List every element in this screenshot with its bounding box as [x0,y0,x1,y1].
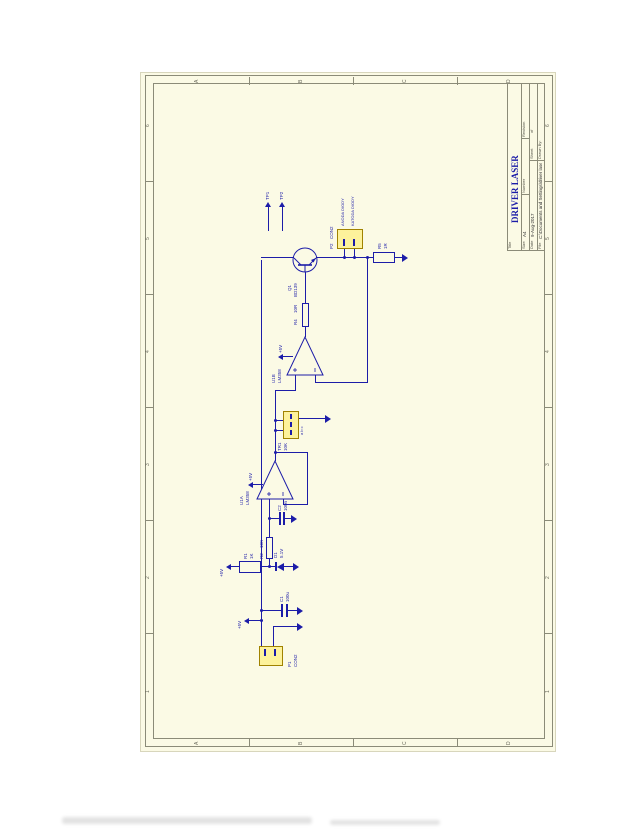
opamp-u1a [253,459,297,501]
wire [305,327,306,337]
capacitor-c2 [279,512,281,525]
r1-value: 1K [249,553,254,559]
wire [249,620,261,621]
u1b-designator: U1B [271,374,276,383]
connector-pin [274,649,276,656]
sheet-title: DRIVER LASER [510,155,520,223]
tr1-value: 10K [283,443,288,451]
gnd-symbol [402,254,408,262]
grid-label: A [195,742,200,745]
wire [231,566,239,567]
wire [269,518,279,519]
file-label: File [538,243,543,249]
u1a-designator: U1A [239,496,244,505]
wire [307,452,308,505]
wire [282,207,283,231]
grid-tick [145,520,153,521]
testpin-flag [279,202,285,207]
grid-label: 5 [146,237,151,240]
wire [268,207,269,231]
wire [273,626,297,627]
tp2-label: TP2 [279,192,284,200]
grid-label: C [403,79,408,83]
grid-label: 3 [546,463,551,466]
testpin-flag [265,202,271,207]
grid-label: 4 [546,350,551,353]
wire [284,566,293,567]
title-label: Title [508,242,513,249]
wire [275,390,295,391]
grid-label: 2 [146,576,151,579]
grid-tick [545,294,553,295]
wire [261,610,281,611]
grid-tick [145,294,153,295]
grid-tick [545,181,553,182]
wire [288,610,297,611]
q1-designator: Q1 [287,285,292,291]
resistor-r1 [239,561,261,573]
r5-designator: R5 [377,243,382,249]
vcc-flag [248,482,253,488]
junction-dot [343,256,346,259]
wire [253,484,263,485]
gnd-symbol [325,415,331,423]
number-label: Number [522,179,527,193]
grid-tick [545,520,553,521]
connector-pin [264,649,266,656]
d1-value: 5.1V [279,549,284,558]
vcc-flag [278,354,283,360]
schematic-sheet: 1 2 3 4 5 6 1 2 3 4 5 6 A B C D A B C D … [140,72,556,752]
con1-value: CON2 [293,654,298,667]
grid-tick [145,181,153,182]
wire [283,499,284,505]
vcc-label: +5V [248,473,253,481]
transistor-q1 [291,244,321,274]
r2-designator: R2 [259,553,264,559]
grid-label: 3 [146,463,151,466]
con2-value: CON2 [329,226,334,239]
c1-value: 100u [285,592,290,602]
con2-pin1-label: ANODA DIODY [341,198,346,226]
date-label: Date [530,241,535,249]
resistor-r5 [373,252,395,263]
wire [275,452,307,453]
sheet-label: Sheet [530,149,535,159]
r1-designator: R1 [243,553,248,559]
c1-designator: C1 [279,596,284,602]
wire [275,453,276,461]
r4-designator: R4 [293,319,298,325]
grid-label: A [195,80,200,83]
gnd-symbol [291,515,297,523]
r5-value: 1R [383,243,388,249]
con2-designator: P2 [329,243,334,249]
grid-label: C [403,741,408,745]
wire [299,418,325,419]
wire [273,627,274,646]
resistor-r2 [266,537,273,559]
vcc-label: +5V [278,345,283,353]
capacitor-c1 [281,604,283,617]
grid-label: 1 [146,690,151,693]
scan-artifact [62,817,312,824]
wire [315,382,368,383]
trimpot-mark [290,414,292,419]
grid-label: 2 [546,576,551,579]
con2-pin2-label: KATODA DIODY [351,196,356,226]
tp1-label: TP1 [265,192,270,200]
grid-tick [145,633,153,634]
trimpot-mark [290,430,292,435]
junction-dot [353,256,356,259]
revision-label: Revision [522,122,527,137]
connector-con1 [259,646,283,666]
scanned-page: 1 2 3 4 5 6 1 2 3 4 5 6 A B C D A B C D … [0,0,640,829]
d1-designator: D1 [273,552,278,558]
grid-label: B [299,742,304,745]
grid-tick [249,739,250,747]
wire [275,430,283,431]
drawn-by-label: Drawn By: [538,141,543,159]
size-value: A4 [522,231,527,237]
q1-value: BD139 [293,283,298,297]
grid-label: D [507,741,512,745]
grid-tick [457,77,458,85]
grid-label: 4 [146,350,151,353]
grid-label: 6 [146,124,151,127]
grid-label: 6 [546,124,551,127]
wire [275,391,276,453]
wire [261,621,262,646]
gnd-symbol [297,607,303,615]
grid-tick [145,407,153,408]
grid-tick [353,739,354,747]
grid-tick [353,77,354,85]
gnd-symbol [297,623,303,631]
connector-pin [353,239,355,246]
file-value: C:\Documents and Settings\driver laser.d… [538,163,543,239]
u1b-value: LM358 [277,369,282,383]
wire [395,257,402,258]
u1a-value: LM358 [245,491,250,505]
wire [367,258,368,383]
grid-label: 5 [546,237,551,240]
grid-tick [249,77,250,85]
gnd-symbol [293,563,299,571]
size-label: Size [522,241,527,249]
trimpot-mark [290,422,292,427]
r4-value: 10R [293,305,298,313]
scan-artifact [330,820,440,825]
grid-label: 1 [546,690,551,693]
wire [283,504,307,505]
resistor-r4 [302,303,309,327]
tr1-pin-letters: a b c [300,426,305,435]
date-value: 9-Aug-2017 [530,213,535,237]
zener-d1 [277,563,284,571]
wire [283,356,293,357]
sheet-inner-border [153,83,545,739]
con1-designator: P1 [287,661,292,667]
grid-tick [545,407,553,408]
vcc-label: +5V [237,621,242,629]
grid-label: B [299,80,304,83]
grid-tick [457,739,458,747]
wire [295,375,296,391]
grid-tick [545,633,553,634]
wire [305,272,306,303]
wire [261,257,294,258]
wire [315,375,316,383]
tr1-designator: TR1 [277,442,282,451]
vcc-flag [244,618,249,624]
wire [275,420,283,421]
r2-value: 10K [259,540,264,548]
vcc-label: +5V [219,569,224,577]
connector-pin [343,239,345,246]
sheet-of-label: of [530,130,535,133]
connector-con2 [337,229,363,249]
c2-designator: C2 [277,505,282,511]
vcc-flag [226,564,231,570]
